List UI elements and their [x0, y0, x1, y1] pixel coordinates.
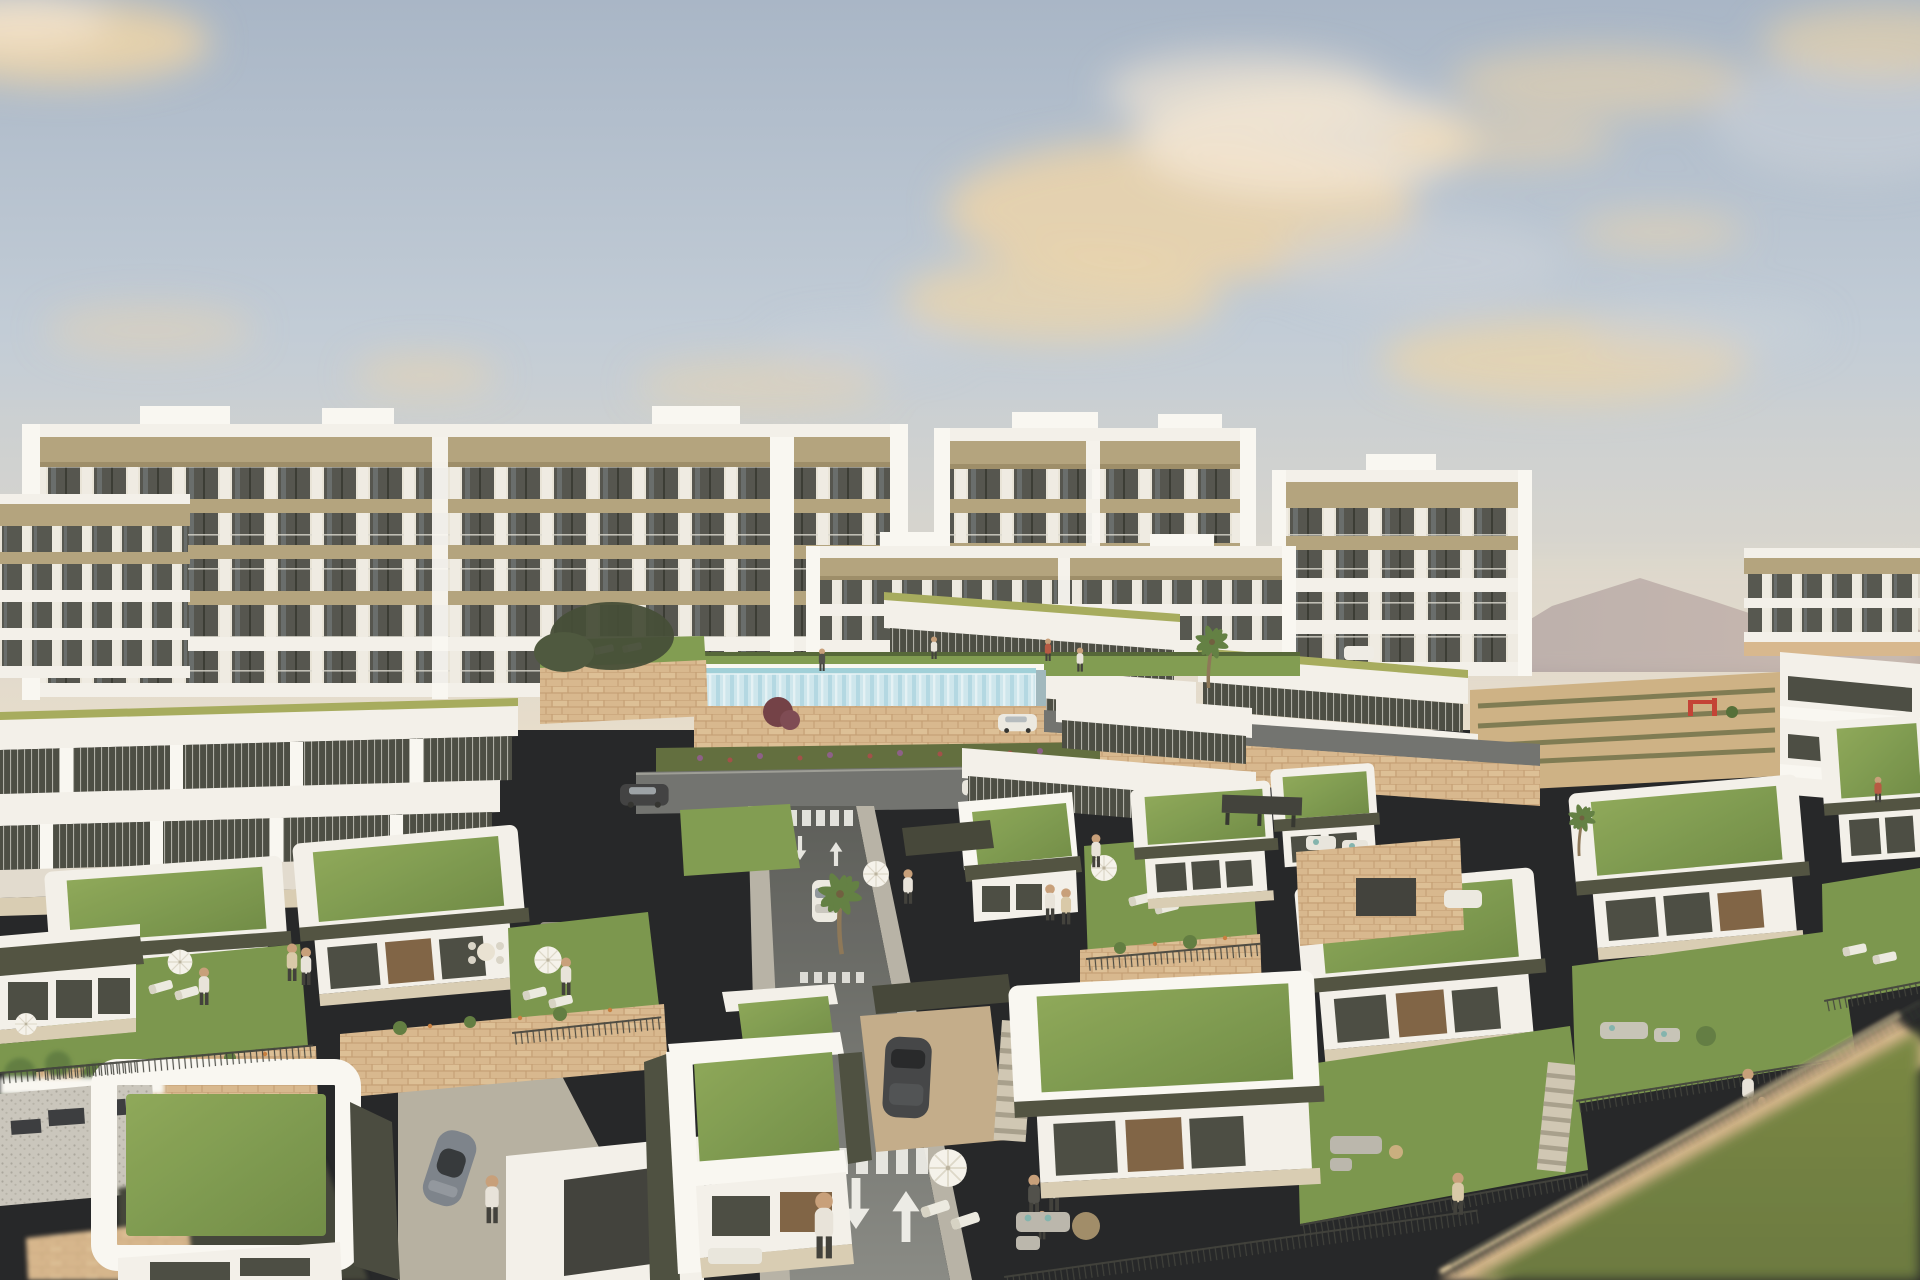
architectural-render: Aerial architectural rendering of a hill…	[0, 0, 1920, 1280]
cloud	[1385, 117, 1615, 167]
cloud	[1105, 52, 1385, 132]
cloud	[1575, 212, 1745, 252]
cloud	[1275, 216, 1565, 308]
cloud	[770, 323, 960, 367]
cloud	[1585, 300, 1825, 360]
golden-hour-wash	[0, 400, 1920, 1280]
render-canvas: Aerial architectural rendering of a hill…	[0, 0, 1920, 1280]
cloud	[900, 258, 1220, 342]
cloud	[1450, 48, 1750, 116]
cloud	[45, 304, 255, 356]
cloud	[353, 355, 497, 395]
